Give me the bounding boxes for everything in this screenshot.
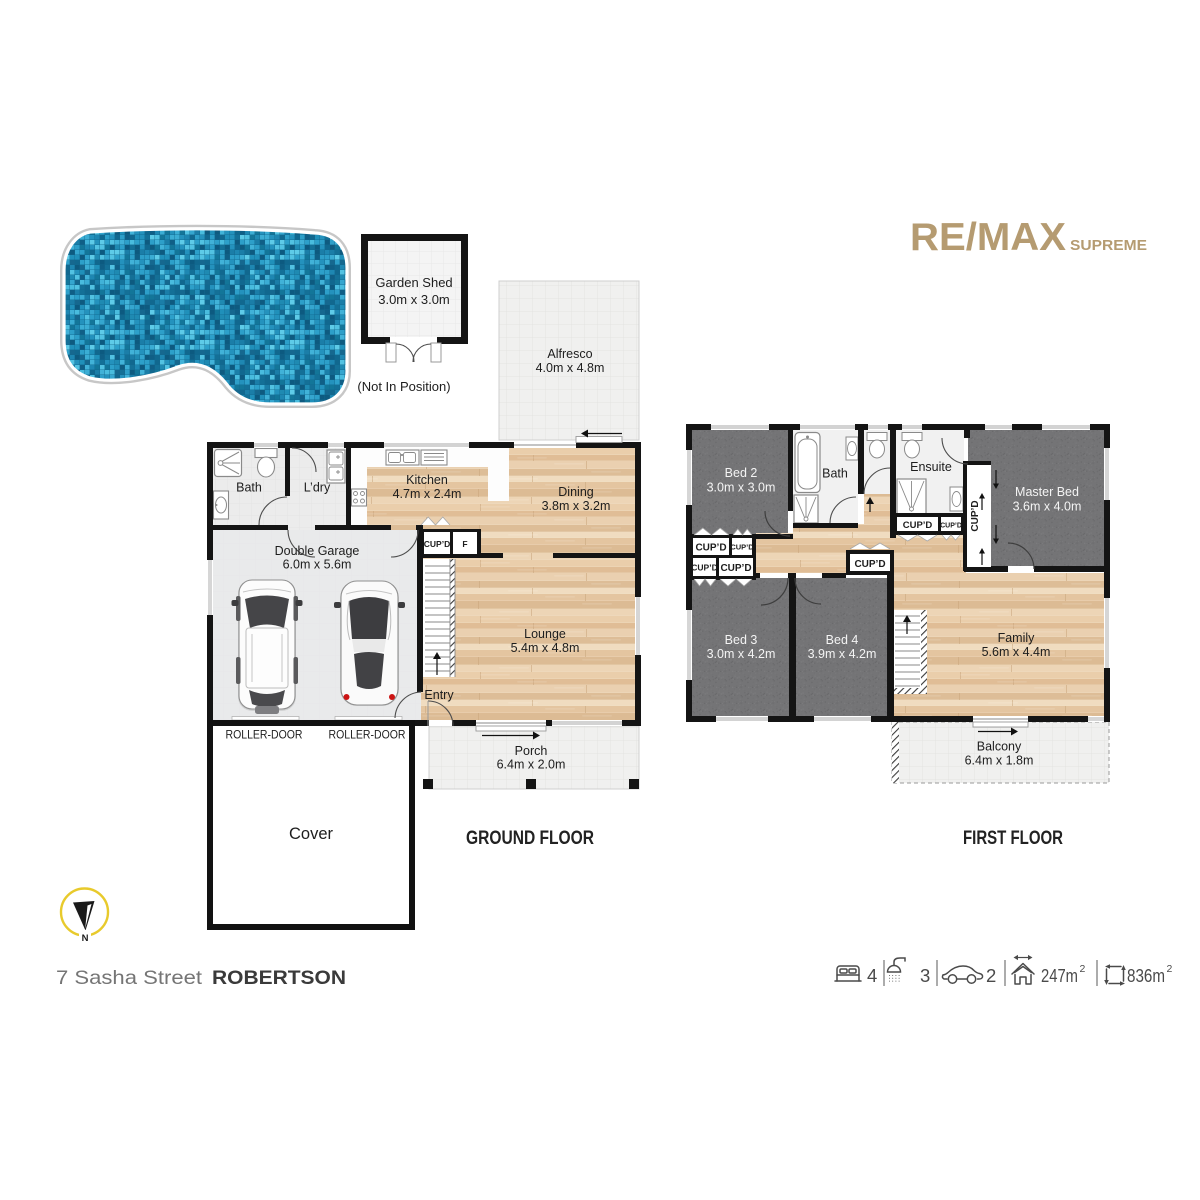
svg-text:L’dry: L’dry bbox=[304, 481, 331, 495]
svg-text:CUP’D: CUP’D bbox=[691, 563, 717, 573]
svg-text:Bed 3: Bed 3 bbox=[725, 633, 758, 647]
svg-text:CUP’D: CUP’D bbox=[424, 539, 450, 549]
svg-text:GROUND FLOOR: GROUND FLOOR bbox=[466, 827, 594, 849]
svg-text:CUP’D: CUP’D bbox=[720, 563, 751, 574]
svg-text:RE/MAX: RE/MAX bbox=[910, 216, 1066, 259]
svg-text:CUP’D: CUP’D bbox=[970, 500, 981, 531]
svg-text:CUP’D: CUP’D bbox=[730, 543, 754, 552]
svg-text:3.0m x 4.2m: 3.0m x 4.2m bbox=[707, 647, 776, 661]
svg-text:ROLLER-DOOR: ROLLER-DOOR bbox=[329, 728, 406, 742]
svg-text:Bath: Bath bbox=[822, 467, 848, 481]
svg-text:Ensuite: Ensuite bbox=[910, 460, 952, 474]
svg-text:Balcony: Balcony bbox=[977, 740, 1022, 754]
svg-text:3.8m x 3.2m: 3.8m x 3.2m bbox=[542, 499, 611, 513]
svg-text:3.0m x 3.0m: 3.0m x 3.0m bbox=[707, 481, 776, 495]
svg-text:3.9m x 4.2m: 3.9m x 4.2m bbox=[808, 647, 877, 661]
svg-text:6.4m x 2.0m: 6.4m x 2.0m bbox=[497, 758, 566, 772]
svg-text:Entry: Entry bbox=[424, 688, 454, 702]
svg-text:4.0m x 4.8m: 4.0m x 4.8m bbox=[536, 361, 605, 375]
svg-text:2: 2 bbox=[986, 965, 996, 986]
svg-text:5.4m x 4.8m: 5.4m x 4.8m bbox=[511, 641, 580, 655]
svg-text:3.6m x 4.0m: 3.6m x 4.0m bbox=[1013, 500, 1082, 514]
svg-text:N: N bbox=[82, 933, 89, 944]
svg-text:2: 2 bbox=[1167, 963, 1173, 975]
svg-text:247m: 247m bbox=[1041, 965, 1078, 986]
svg-text:7 Sasha Street: 7 Sasha Street bbox=[56, 967, 203, 989]
svg-text:Porch: Porch bbox=[515, 744, 548, 758]
svg-text:Dining: Dining bbox=[558, 485, 593, 499]
svg-text:Alfresco: Alfresco bbox=[547, 347, 592, 361]
svg-text:6.4m x 1.8m: 6.4m x 1.8m bbox=[965, 754, 1034, 768]
svg-text:FIRST FLOOR: FIRST FLOOR bbox=[963, 827, 1063, 849]
svg-text:3: 3 bbox=[920, 965, 930, 986]
svg-text:4: 4 bbox=[867, 965, 877, 986]
svg-text:CUP’D: CUP’D bbox=[903, 520, 933, 531]
svg-text:5.6m x 4.4m: 5.6m x 4.4m bbox=[982, 645, 1051, 659]
svg-text:Lounge: Lounge bbox=[524, 627, 566, 641]
svg-text:Family: Family bbox=[998, 631, 1036, 645]
svg-text:CUP’D: CUP’D bbox=[854, 559, 885, 570]
svg-text:Garden Shed: Garden Shed bbox=[375, 275, 452, 290]
svg-text:SUPREME: SUPREME bbox=[1070, 238, 1147, 254]
svg-text:CUP’D: CUP’D bbox=[940, 523, 962, 530]
svg-text:Bed 4: Bed 4 bbox=[826, 633, 859, 647]
svg-text:836m: 836m bbox=[1127, 965, 1165, 986]
svg-text:3.0m x 3.0m: 3.0m x 3.0m bbox=[378, 292, 450, 307]
svg-text:Master Bed: Master Bed bbox=[1015, 485, 1079, 499]
svg-text:F: F bbox=[462, 539, 467, 549]
svg-text:CUP’D: CUP’D bbox=[695, 543, 726, 554]
svg-text:ROLLER-DOOR: ROLLER-DOOR bbox=[226, 728, 303, 742]
svg-text:6.0m x 5.6m: 6.0m x 5.6m bbox=[283, 558, 352, 572]
svg-text:4.7m x 2.4m: 4.7m x 2.4m bbox=[393, 487, 462, 501]
svg-text:(Not In Position): (Not In Position) bbox=[357, 379, 450, 394]
svg-text:Double Garage: Double Garage bbox=[275, 544, 360, 558]
svg-text:Bath: Bath bbox=[236, 481, 262, 495]
svg-text:ROBERTSON: ROBERTSON bbox=[212, 967, 346, 989]
svg-text:Bed 2: Bed 2 bbox=[725, 466, 758, 480]
svg-text:2: 2 bbox=[1080, 963, 1086, 975]
svg-text:Kitchen: Kitchen bbox=[406, 473, 448, 487]
svg-text:Cover: Cover bbox=[289, 825, 334, 843]
